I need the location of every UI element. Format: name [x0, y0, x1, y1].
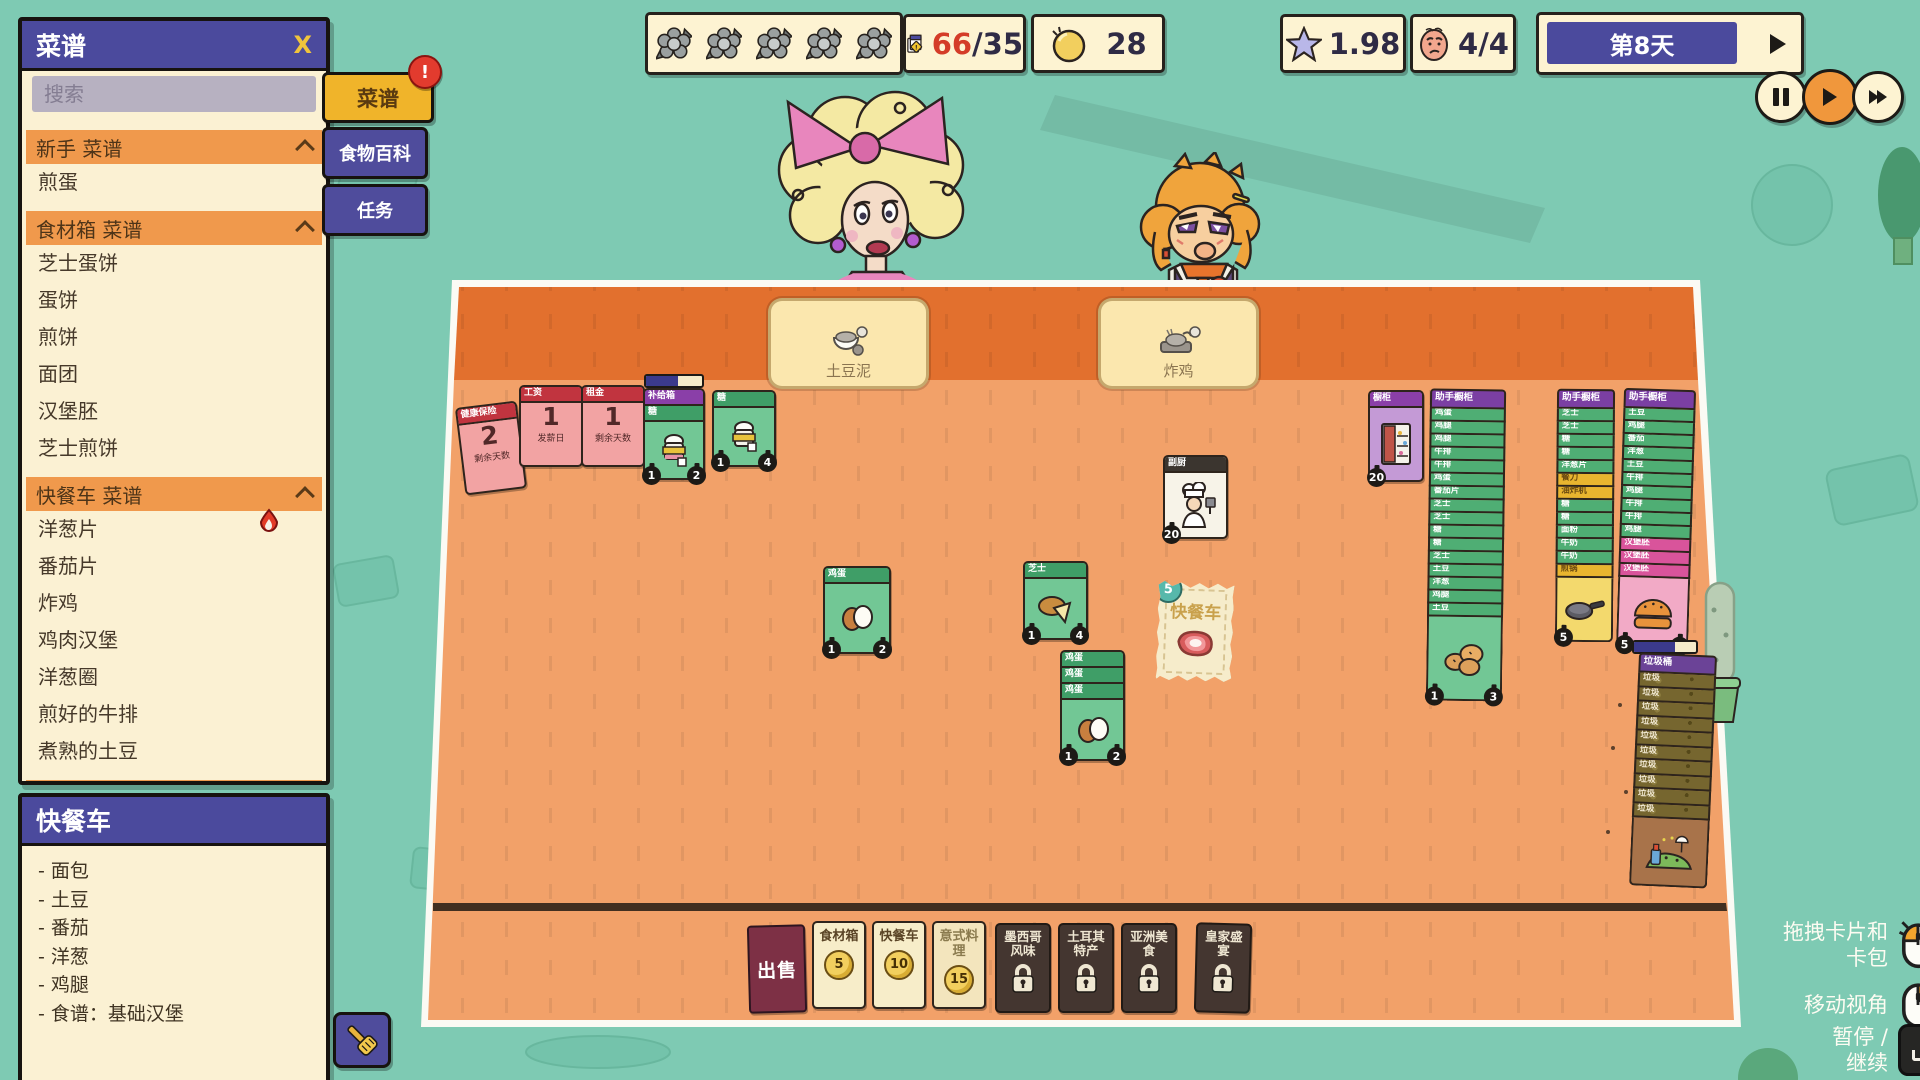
- chevron-up-icon: [295, 220, 315, 240]
- stack-row[interactable]: 番茄片: [1429, 486, 1505, 500]
- stack-row[interactable]: 芝士: [1428, 512, 1504, 526]
- flower-icon: [656, 26, 692, 62]
- flower-icon: [756, 26, 792, 62]
- food-truck-pack-card[interactable]: 快餐车 5: [1155, 581, 1234, 683]
- stack-row[interactable]: 油炸机: [1556, 487, 1614, 501]
- ingredient-line: - 面包: [38, 857, 318, 886]
- locked-card-pack[interactable]: 亚洲美食: [1121, 923, 1177, 1013]
- recipe-row[interactable]: 番茄片: [26, 548, 322, 585]
- recipe-row[interactable]: 煎饼: [26, 319, 322, 356]
- satisfaction-flowers-box: [645, 12, 903, 75]
- recipe-row[interactable]: 食材箱 菜谱: [26, 211, 322, 245]
- flower-row: [656, 26, 892, 62]
- stack-rows: 芝士芝士糖糖洋葱片餐刀油炸机糖糖面粉牛奶牛奶煎锅: [1555, 409, 1614, 578]
- fast-forward-button[interactable]: [1852, 71, 1904, 123]
- spatula-icon: [340, 1019, 384, 1061]
- stack-row[interactable]: 糖: [1556, 448, 1614, 462]
- padlock-icon: [1072, 961, 1100, 995]
- order-slot-mashed-potato[interactable]: 土豆泥: [768, 298, 929, 389]
- flower-icon: [706, 26, 742, 62]
- pause-icon: [1773, 88, 1779, 106]
- supply-box-card[interactable]: 补给箱 糖 1 2: [643, 388, 705, 480]
- spatula-tool-button[interactable]: [333, 1012, 391, 1068]
- stack-row[interactable]: 芝士: [1557, 409, 1615, 423]
- coins-value: 28: [1106, 27, 1146, 61]
- recipe-row[interactable]: 面团: [26, 356, 322, 393]
- orders-current: 66: [932, 27, 972, 61]
- burger-bun-icon: [1628, 592, 1677, 633]
- mood-face-icon: [1417, 26, 1451, 62]
- ingredient-list: - 面包- 土豆- 番茄- 洋葱- 鸡腿- 食谱：基础汉堡: [38, 857, 318, 1028]
- coin-price: 15: [944, 965, 974, 995]
- cheese-card[interactable]: 芝士 1 4: [1023, 561, 1088, 640]
- rent-card[interactable]: 租金 1 剩余天数: [581, 385, 645, 467]
- fire-icon: [258, 508, 280, 532]
- day-box: 第8天: [1536, 12, 1804, 75]
- stack-row[interactable]: 煎锅: [1555, 565, 1613, 579]
- hint-drag-cards: 拖拽卡片和卡包: [1736, 918, 1920, 972]
- coin-price: 5: [824, 950, 854, 980]
- eggs-icon: [1075, 715, 1111, 745]
- card-pack-buy-button[interactable]: 食材箱 5: [812, 921, 866, 1009]
- recipe-row[interactable]: 汉堡胚: [26, 393, 322, 430]
- fried-chicken-icon: [1153, 326, 1205, 360]
- stack-row[interactable]: 芝士: [1557, 422, 1615, 436]
- food-truck-panel: 快餐车 - 面包- 土豆- 番茄- 洋葱- 鸡腿- 食谱：基础汉堡: [18, 793, 330, 1080]
- spacebar-key-icon: [1898, 1024, 1920, 1076]
- ingredient-line: - 食谱：基础汉堡: [38, 1000, 318, 1029]
- sell-zone[interactable]: 出售: [747, 924, 807, 1013]
- coin-price: 10: [884, 950, 914, 980]
- ingredient-line: - 洋葱: [38, 943, 318, 972]
- fridge-icon: [1380, 422, 1412, 466]
- stack-row[interactable]: 糖: [1556, 513, 1614, 527]
- stack-row[interactable]: 芝士: [1428, 499, 1504, 513]
- mood-value: 4/4: [1458, 27, 1509, 61]
- flower-icon: [806, 26, 842, 62]
- supply-box-timer: [644, 374, 704, 388]
- flower-icon: [856, 26, 892, 62]
- locked-card-pack[interactable]: 土耳其特产: [1058, 923, 1114, 1013]
- chevron-up-icon: [295, 486, 315, 506]
- sugar-jar-icon: [659, 432, 689, 468]
- helper-cupboard-stack-3[interactable]: 助手橱柜 土豆鸡腿番茄洋葱土豆牛排鸡腿牛排牛排鸡腿汉堡胚汉堡胚汉堡胚 5 4: [1616, 388, 1696, 651]
- frying-pan-icon: [1562, 595, 1606, 623]
- food-encyclopedia-button[interactable]: 食物百科: [322, 127, 428, 179]
- ingredient-line: - 鸡腿: [38, 971, 318, 1000]
- stack-row[interactable]: 面粉: [1556, 526, 1614, 540]
- stack-row[interactable]: 鸡腿: [1430, 421, 1506, 435]
- eggs-icon: [839, 603, 875, 633]
- locked-pack-row: 墨西哥风味 土耳其特产 亚洲美食: [995, 923, 1251, 1013]
- stack-row[interactable]: 鸡蛋: [1430, 408, 1506, 422]
- ingredient-line: - 番茄: [38, 914, 318, 943]
- next-day-icon[interactable]: [1770, 34, 1786, 54]
- locked-card-pack[interactable]: 皇家盛宴: [1194, 922, 1252, 1013]
- stack-row[interactable]: 牛排: [1429, 447, 1505, 461]
- food-truck-panel-title: 快餐车: [36, 802, 111, 838]
- garbage-pile-body[interactable]: [1629, 817, 1710, 888]
- locked-card-pack[interactable]: 墨西哥风味: [995, 923, 1051, 1013]
- card-pack-buy-button[interactable]: 快餐车 10: [872, 921, 926, 1009]
- stack-row[interactable]: 洋葱片: [1556, 461, 1614, 475]
- card-pack-buy-button[interactable]: 意式料理 15: [932, 921, 986, 1009]
- play-icon: [1823, 88, 1837, 106]
- pan-stack-body[interactable]: 5: [1555, 578, 1614, 643]
- close-icon[interactable]: X: [293, 31, 312, 59]
- stack-rows: 土豆鸡腿番茄洋葱土豆牛排鸡腿牛排牛排鸡腿汉堡胚汉堡胚汉堡胚: [1618, 408, 1695, 579]
- stack-row[interactable]: 芝士: [1428, 551, 1504, 565]
- potato-stack-body[interactable]: 1 3: [1426, 616, 1503, 701]
- recipe-row[interactable]: 炸鸡: [26, 585, 322, 622]
- star-icon: [1286, 26, 1322, 62]
- order-cards-icon: !: [906, 27, 925, 61]
- recipe-row[interactable]: 煎蛋: [26, 164, 322, 201]
- stack-row[interactable]: 鸡腿: [1429, 434, 1505, 448]
- recipe-list: 新手 菜谱 煎蛋 食材箱 菜谱 芝士蛋饼: [26, 120, 322, 781]
- sous-chef-card[interactable]: 副厨 20: [1163, 455, 1228, 539]
- recipe-row[interactable]: 煮熟的土豆: [26, 733, 322, 770]
- padlock-icon: [1009, 961, 1037, 995]
- stack-row[interactable]: 洋葱: [1427, 577, 1503, 591]
- egg-stack-card[interactable]: 鸡蛋 鸡蛋 鸡蛋 1 2: [1060, 650, 1125, 761]
- padlock-icon: [1135, 961, 1163, 995]
- stack-rows: 鸡蛋鸡腿鸡腿牛排牛排鸡蛋番茄片芝士芝士糖糖芝士土豆洋葱鸡腿土豆: [1427, 408, 1506, 617]
- recipe-row[interactable]: 芝士煎饼: [26, 430, 322, 467]
- order-slot-label: 炸鸡: [1163, 360, 1193, 381]
- recipes-panel: 菜谱 X 新手 菜谱 煎蛋 食材箱 菜谱: [18, 17, 330, 785]
- recipe-row[interactable]: 洋葱圈: [26, 659, 322, 696]
- stack-row[interactable]: 糖: [1557, 435, 1615, 449]
- stack-row[interactable]: 糖: [1428, 525, 1504, 539]
- svg-text:!: !: [915, 44, 918, 51]
- helper-cupboard-stack-2[interactable]: 助手橱柜 芝士芝士糖糖洋葱片餐刀油炸机糖糖面粉牛奶牛奶煎锅 5: [1555, 389, 1615, 642]
- padlock-icon: [1208, 961, 1237, 996]
- orders-counter-box: ! 66/35: [903, 14, 1026, 73]
- coin-icon: [1049, 25, 1087, 63]
- stack-row[interactable]: 土豆: [1428, 564, 1504, 578]
- stack-row[interactable]: 牛奶: [1556, 539, 1614, 553]
- mood-box: 4/4: [1410, 14, 1516, 73]
- chef-icon: [1175, 482, 1217, 528]
- stack-row[interactable]: 鸡腿: [1427, 590, 1503, 604]
- hint-pause-resume: 暂停 /继续: [1736, 1024, 1920, 1077]
- mouse-left-click-icon: [1898, 918, 1920, 972]
- stack-row[interactable]: 糖: [1428, 538, 1504, 552]
- stack-row[interactable]: 牛排: [1429, 460, 1505, 474]
- ingredient-line: - 土豆: [38, 886, 318, 915]
- chevron-up-icon: [295, 139, 315, 159]
- recipe-row[interactable]: 芝士蛋饼: [26, 245, 322, 282]
- recipe-row[interactable]: 快餐车 菜谱: [26, 477, 322, 511]
- trash-can-stack[interactable]: 垃圾桶 垃圾垃圾垃圾垃圾垃圾垃圾垃圾垃圾垃圾垃圾: [1629, 652, 1717, 888]
- recipe-row[interactable]: 蛋饼: [26, 282, 322, 319]
- stack-row[interactable]: 餐刀: [1556, 474, 1614, 488]
- coins-box: 28: [1031, 14, 1165, 73]
- play-button[interactable]: [1802, 69, 1858, 125]
- tasks-button[interactable]: 任务: [322, 184, 428, 236]
- notification-badge: !: [408, 55, 442, 89]
- recipe-row[interactable]: 意式料理 菜谱: [26, 780, 322, 781]
- game-screen: 土豆泥 炸鸡 健康保险 2 剩余天数 工资 1 发薪日 租金 1 剩余天数 补给…: [0, 0, 1920, 1080]
- stack-row[interactable]: 土豆: [1427, 603, 1503, 617]
- sugar-card[interactable]: 糖 1 4: [712, 390, 776, 467]
- orders-max: /35: [972, 27, 1023, 61]
- egg-card[interactable]: 鸡蛋 1 2: [823, 566, 891, 654]
- garbage-pile-icon: [1641, 829, 1699, 875]
- helper-cupboard-stack-1[interactable]: 助手橱柜 鸡蛋鸡腿鸡腿牛排牛排鸡蛋番茄片芝士芝士糖糖芝士土豆洋葱鸡腿土豆 1 3: [1426, 388, 1506, 701]
- order-slot-label: 土豆泥: [826, 360, 871, 381]
- pause-button[interactable]: [1755, 71, 1807, 123]
- recipe-row[interactable]: 煎好的牛排: [26, 696, 322, 733]
- sugar-jar-icon: [729, 419, 759, 455]
- meat-icon: [1172, 625, 1217, 661]
- order-slot-fried-chicken[interactable]: 炸鸡: [1098, 298, 1259, 389]
- pack-shop-row: 食材箱 5 快餐车 10 意式料理 15: [812, 921, 986, 1009]
- cabinet-card[interactable]: 橱柜 20: [1368, 390, 1424, 482]
- cheese-icon: [1037, 594, 1075, 624]
- potatoes-icon: [1441, 640, 1487, 677]
- stack-row[interactable]: 糖: [1556, 500, 1614, 514]
- stack-row[interactable]: 鸡蛋: [1429, 473, 1505, 487]
- stars-value: 1.98: [1329, 27, 1401, 61]
- recipe-row[interactable]: 鸡肉汉堡: [26, 622, 322, 659]
- mashed-potato-icon: [826, 326, 872, 360]
- recipe-search-input[interactable]: [32, 76, 316, 112]
- health-insurance-card[interactable]: 健康保险 2 剩余天数: [455, 401, 527, 496]
- stack-row[interactable]: 牛奶: [1556, 552, 1614, 566]
- day-label: 第8天: [1547, 22, 1737, 64]
- recipes-panel-title: 菜谱: [36, 27, 86, 63]
- wage-card[interactable]: 工资 1 发薪日: [519, 385, 583, 467]
- stars-box: 1.98: [1280, 14, 1406, 73]
- recipe-row[interactable]: 新手 菜谱: [26, 130, 322, 164]
- stack-rows: 垃圾垃圾垃圾垃圾垃圾垃圾垃圾垃圾垃圾垃圾: [1632, 672, 1716, 820]
